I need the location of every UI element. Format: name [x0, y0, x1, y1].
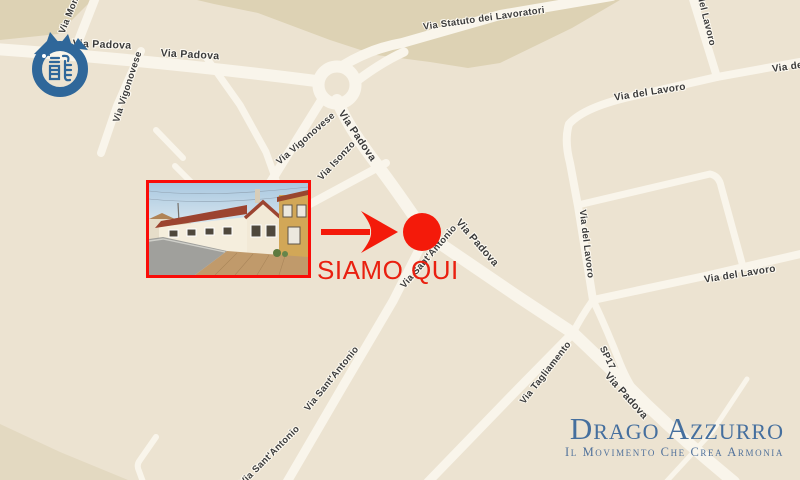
map-canvas: Via Padova Via Padova Via Statuto dei La… [0, 0, 800, 480]
brand-title: Drago Azzurro [565, 413, 784, 444]
dragon-logo-graphic [22, 26, 100, 108]
dragon-kanji [50, 56, 71, 80]
dragon-eye [42, 54, 46, 58]
brand-block: Drago Azzurro Il Movimento Che Crea Armo… [565, 413, 784, 460]
annotation-layer [0, 0, 800, 480]
dragon-logo [22, 26, 100, 108]
brand-subtitle: Il Movimento Che Crea Armonia [565, 445, 784, 460]
location-marker [403, 213, 441, 251]
here-label: SIAMO QUI [317, 255, 459, 286]
